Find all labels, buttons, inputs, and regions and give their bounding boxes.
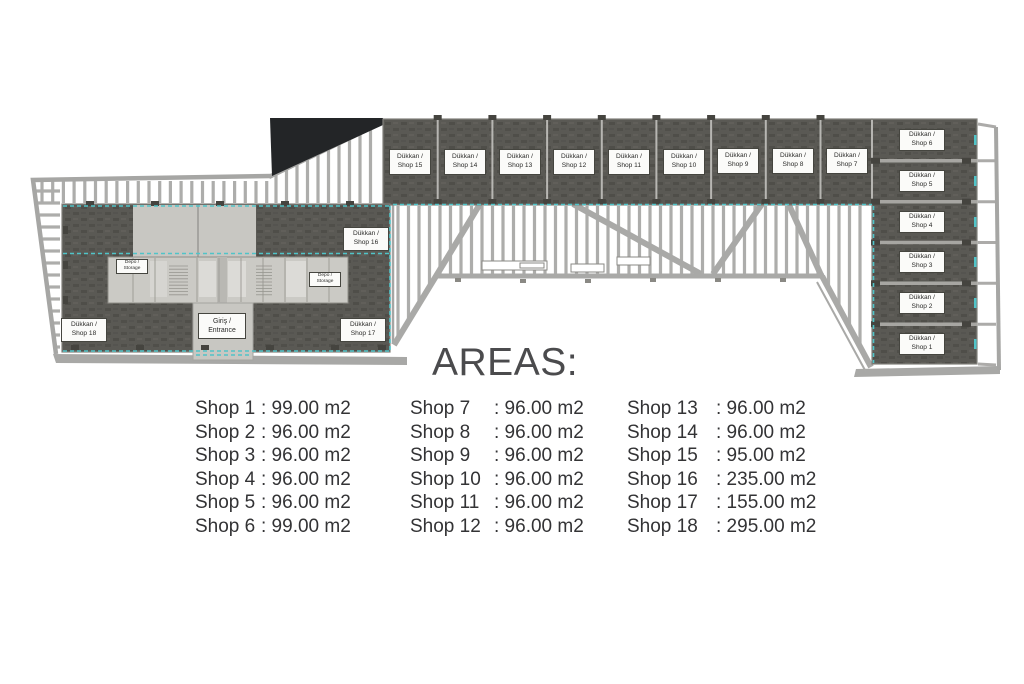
- area-item-name: Shop 4: [195, 468, 261, 492]
- area-item-name: Shop 12: [410, 515, 494, 539]
- area-item-name: Shop 2: [195, 421, 261, 445]
- area-item-value: : 96.00 m2: [494, 397, 584, 421]
- area-item-value: : 96.00 m2: [716, 421, 806, 445]
- storage-left-label: Depo /Storage: [116, 259, 148, 274]
- shop-2-label: Dükkan /Shop 2: [899, 292, 945, 314]
- area-item-value: : 96.00 m2: [494, 491, 584, 515]
- area-item-name: Shop 1: [195, 397, 261, 421]
- shop-17-label: Dükkan /Shop 17: [340, 318, 386, 342]
- area-item-value: : 99.00 m2: [261, 397, 351, 421]
- area-item: Shop 7: 96.00 m2: [410, 397, 584, 421]
- entrance-label: Giriş /Entrance: [198, 313, 246, 339]
- area-item-value: : 96.00 m2: [716, 397, 806, 421]
- area-item: Shop 11: 96.00 m2: [410, 491, 584, 515]
- shop-8-label: Dükkan /Shop 8: [772, 148, 814, 174]
- areas-title: AREAS:: [432, 341, 578, 385]
- areas-column-1: Shop 1: 99.00 m2Shop 2: 96.00 m2Shop 3: …: [195, 397, 351, 539]
- storage-right-label: Depo /Storage: [309, 272, 341, 287]
- area-item-name: Shop 8: [410, 421, 494, 445]
- shop-11-label: Dükkan /Shop 11: [608, 149, 650, 175]
- shop-1-label: Dükkan /Shop 1: [899, 333, 945, 355]
- area-item-value: : 96.00 m2: [494, 468, 584, 492]
- area-item-name: Shop 16: [627, 468, 716, 492]
- area-item: Shop 1: 99.00 m2: [195, 397, 351, 421]
- area-item-name: Shop 3: [195, 444, 261, 468]
- area-item-value: : 96.00 m2: [494, 444, 584, 468]
- area-item-value: : 96.00 m2: [261, 468, 351, 492]
- shop-7-label: Dükkan /Shop 7: [826, 148, 868, 174]
- area-item-name: Shop 18: [627, 515, 716, 539]
- area-item-name: Shop 7: [410, 397, 494, 421]
- area-item: Shop 17: 155.00 m2: [627, 491, 816, 515]
- area-item: Shop 4: 96.00 m2: [195, 468, 351, 492]
- shop-9-label: Dükkan /Shop 9: [717, 148, 759, 174]
- area-item-value: : 96.00 m2: [261, 491, 351, 515]
- areas-column-2: Shop 7: 96.00 m2Shop 8: 96.00 m2Shop 9: …: [410, 397, 584, 539]
- shop-16-label: Dükkan /Shop 16: [343, 227, 389, 251]
- shop-4-label: Dükkan /Shop 4: [899, 211, 945, 233]
- area-item: Shop 15: 95.00 m2: [627, 444, 816, 468]
- area-item-name: Shop 17: [627, 491, 716, 515]
- shop-14-label: Dükkan /Shop 14: [444, 149, 486, 175]
- area-item-name: Shop 5: [195, 491, 261, 515]
- area-item-value: : 95.00 m2: [716, 444, 806, 468]
- area-item-value: : 96.00 m2: [261, 444, 351, 468]
- area-item-value: : 99.00 m2: [261, 515, 351, 539]
- area-item: Shop 6: 99.00 m2: [195, 515, 351, 539]
- area-item: Shop 10: 96.00 m2: [410, 468, 584, 492]
- area-item-name: Shop 11: [410, 491, 494, 515]
- area-item: Shop 12: 96.00 m2: [410, 515, 584, 539]
- shop-5-label: Dükkan /Shop 5: [899, 170, 945, 192]
- area-item-name: Shop 10: [410, 468, 494, 492]
- shop-12-label: Dükkan /Shop 12: [553, 149, 595, 175]
- shop-10-label: Dükkan /Shop 10: [663, 149, 705, 175]
- area-item-value: : 155.00 m2: [716, 491, 816, 515]
- shop-6-label: Dükkan /Shop 6: [899, 129, 945, 151]
- area-item-name: Shop 9: [410, 444, 494, 468]
- area-item-name: Shop 15: [627, 444, 716, 468]
- shop-18-label: Dükkan /Shop 18: [61, 318, 107, 342]
- area-item: Shop 14: 96.00 m2: [627, 421, 816, 445]
- area-item: Shop 16: 235.00 m2: [627, 468, 816, 492]
- area-item-value: : 96.00 m2: [494, 515, 584, 539]
- area-item-value: : 295.00 m2: [716, 515, 816, 539]
- area-item-value: : 235.00 m2: [716, 468, 816, 492]
- area-item: Shop 8: 96.00 m2: [410, 421, 584, 445]
- floor-plan-page: Dükkan /Shop 15Dükkan /Shop 14Dükkan /Sh…: [0, 0, 1024, 684]
- shop-3-label: Dükkan /Shop 3: [899, 251, 945, 273]
- area-item-name: Shop 13: [627, 397, 716, 421]
- area-item: Shop 9: 96.00 m2: [410, 444, 584, 468]
- areas-column-3: Shop 13: 96.00 m2Shop 14: 96.00 m2Shop 1…: [627, 397, 816, 539]
- area-item-name: Shop 6: [195, 515, 261, 539]
- area-item: Shop 2: 96.00 m2: [195, 421, 351, 445]
- area-item: Shop 13: 96.00 m2: [627, 397, 816, 421]
- area-item-name: Shop 14: [627, 421, 716, 445]
- area-item-value: : 96.00 m2: [494, 421, 584, 445]
- shop-13-label: Dükkan /Shop 13: [499, 149, 541, 175]
- area-item: Shop 5: 96.00 m2: [195, 491, 351, 515]
- area-item: Shop 3: 96.00 m2: [195, 444, 351, 468]
- area-item-value: : 96.00 m2: [261, 421, 351, 445]
- shop-15-label: Dükkan /Shop 15: [389, 149, 431, 175]
- area-item: Shop 18: 295.00 m2: [627, 515, 816, 539]
